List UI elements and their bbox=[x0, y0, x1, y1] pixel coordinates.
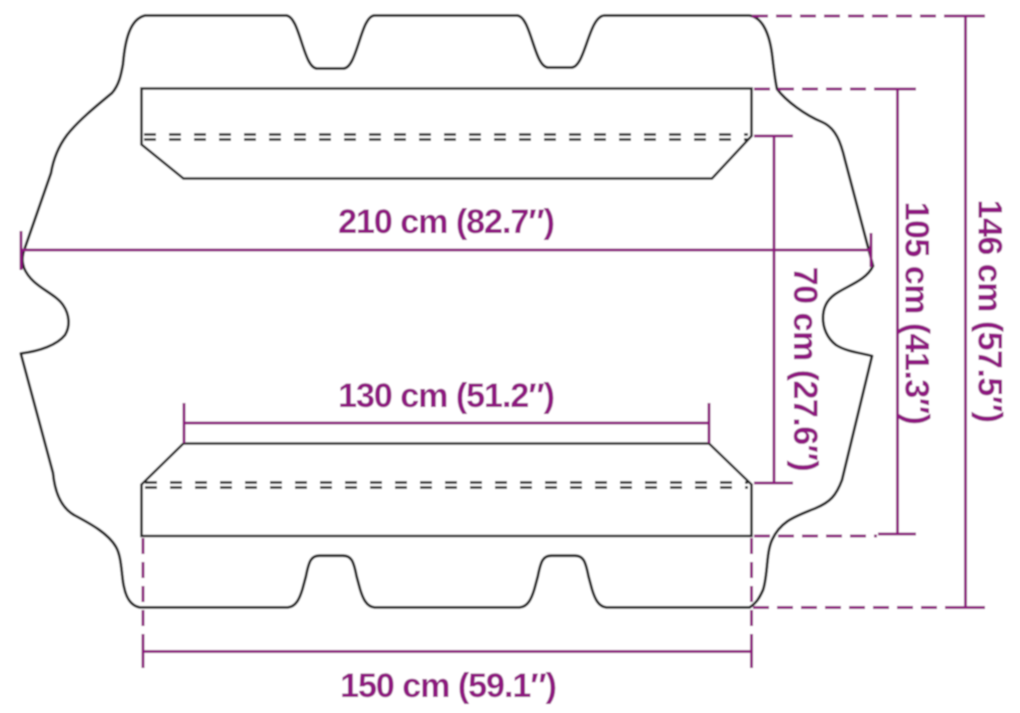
svg-text:105 cm (41.3″): 105 cm (41.3″) bbox=[898, 202, 936, 425]
svg-text:146 cm (57.5″): 146 cm (57.5″) bbox=[971, 200, 1009, 423]
svg-text:70 cm (27.6″): 70 cm (27.6″) bbox=[786, 267, 824, 471]
svg-text:210 cm (82.7″): 210 cm (82.7″) bbox=[338, 203, 554, 241]
svg-text:150 cm (59.1″): 150 cm (59.1″) bbox=[340, 667, 556, 705]
svg-text:130 cm (51.2″): 130 cm (51.2″) bbox=[338, 377, 554, 415]
